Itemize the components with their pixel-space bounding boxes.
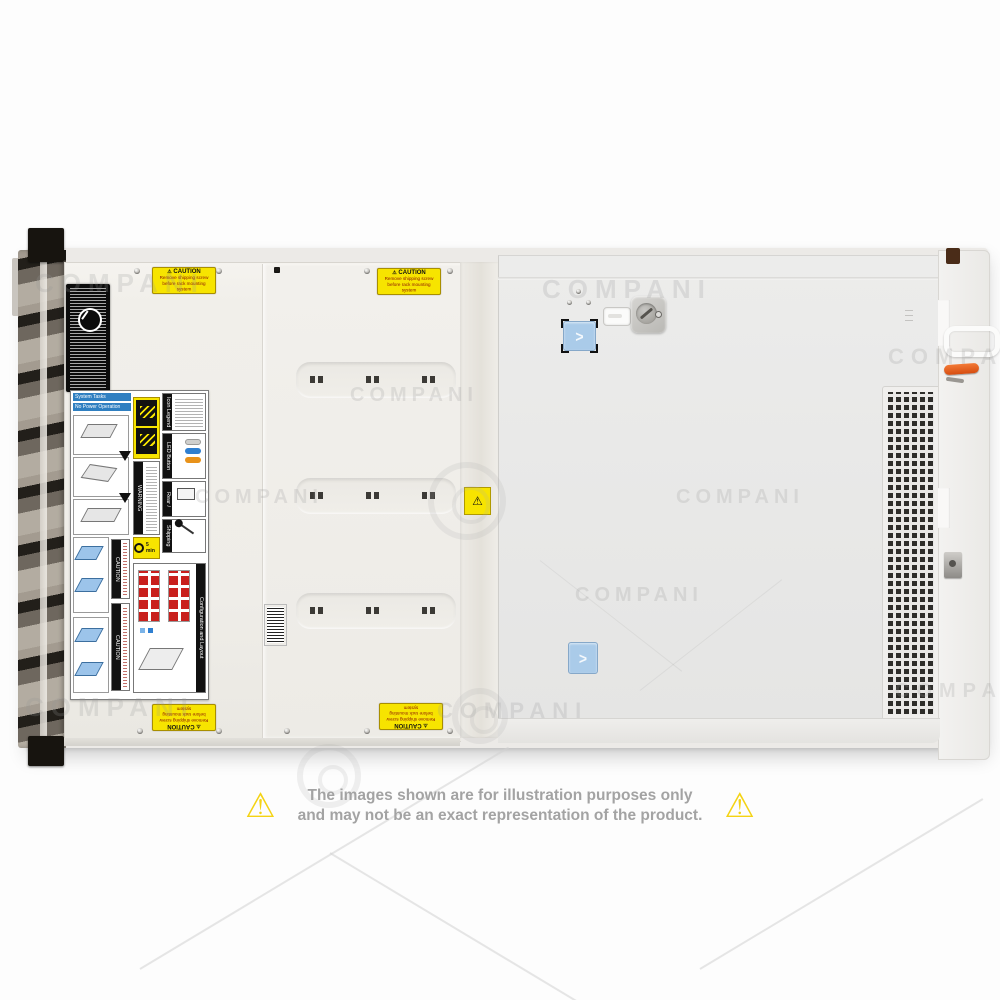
vent-slots bbox=[310, 492, 442, 499]
etched-text bbox=[905, 320, 913, 321]
corner-bracket bbox=[590, 319, 598, 328]
caution-label-bottom-right: ⚠ CAUTION Remove shipping screw before r… bbox=[379, 703, 443, 730]
watermark-logo bbox=[428, 462, 506, 540]
etched-text bbox=[905, 310, 913, 311]
hazard-pictogram bbox=[136, 400, 157, 426]
product-photo: COMPANI COMPANI COMPANI COMPANI COMPANI … bbox=[0, 0, 1000, 1000]
screw bbox=[364, 268, 370, 274]
shipping-tab bbox=[946, 248, 960, 264]
disclaimer-text: The images shown are for illustration pu… bbox=[298, 786, 703, 826]
warning-triangle-icon: ⚠ bbox=[392, 270, 396, 276]
warning-triangle-icon: ⚠ bbox=[724, 789, 754, 823]
drive-bay-grid bbox=[138, 570, 160, 622]
cover-ridge bbox=[498, 277, 945, 280]
arrow-icon bbox=[119, 451, 131, 461]
five-minute-timer-icon: 5 min bbox=[133, 537, 160, 559]
screw bbox=[364, 728, 370, 734]
caution-label-top-left: ⚠ CAUTION Remove shipping screw before r… bbox=[152, 267, 216, 294]
drive-bay-grid bbox=[168, 570, 190, 622]
corner-bracket bbox=[561, 319, 569, 328]
etched-text bbox=[905, 315, 913, 316]
corner-bracket bbox=[561, 344, 569, 353]
service-label: System Tasks No Power Operation WARNING … bbox=[70, 390, 209, 700]
chevron-right-icon: > bbox=[575, 328, 583, 344]
service-label-tab: No Power Operation bbox=[73, 403, 131, 411]
legend-square-blue bbox=[140, 628, 145, 633]
screw bbox=[576, 289, 581, 294]
watermark-line bbox=[329, 852, 673, 1000]
led-pill-gray bbox=[185, 439, 201, 445]
caution-strip: CAUTION bbox=[111, 603, 130, 691]
vent-slots bbox=[310, 607, 442, 614]
warning-triangle-icon: ⚠ bbox=[196, 723, 200, 729]
regulatory-text-lines bbox=[70, 288, 106, 388]
handle-recess bbox=[296, 362, 456, 398]
warning-panel: WARNING bbox=[133, 461, 160, 535]
barcode-label bbox=[264, 604, 287, 646]
screw bbox=[284, 728, 290, 734]
cover-latch-button-bottom: > bbox=[568, 642, 598, 674]
screw bbox=[586, 300, 591, 305]
keylock bbox=[631, 296, 666, 333]
screw bbox=[137, 728, 143, 734]
regulatory-emblem bbox=[78, 308, 102, 332]
rack-ear-bottom bbox=[28, 736, 64, 766]
step-diagram bbox=[73, 457, 129, 497]
screw bbox=[134, 268, 140, 274]
step-diagram bbox=[73, 415, 129, 455]
blue-step-diagram bbox=[73, 537, 109, 613]
handle-recess bbox=[296, 593, 456, 629]
rack-ear-top bbox=[28, 228, 64, 262]
disclaimer: ⚠ The images shown are for illustration … bbox=[0, 786, 1000, 826]
corner-bracket bbox=[590, 344, 598, 353]
hazard-pictogram bbox=[136, 428, 157, 454]
arrow-icon bbox=[119, 493, 131, 503]
service-tag-art bbox=[177, 488, 195, 500]
front-bottom-edge bbox=[64, 738, 460, 746]
chevron-right-icon: > bbox=[579, 650, 587, 666]
led-pill-blue bbox=[185, 448, 201, 454]
screw bbox=[274, 267, 280, 273]
lock-indicator bbox=[655, 311, 662, 318]
blue-step-diagram bbox=[73, 617, 109, 693]
screw bbox=[216, 728, 222, 734]
warning-triangle-icon: ⚠ bbox=[245, 789, 275, 823]
screw-art bbox=[180, 524, 194, 535]
edge-notch bbox=[938, 488, 950, 528]
watermark-logo bbox=[452, 688, 508, 744]
icon-legend-panel: Icon Legend bbox=[162, 393, 206, 431]
metal-bracket bbox=[944, 552, 962, 578]
chassis-isometric-art bbox=[138, 648, 184, 670]
led-behavior-panel: LED Button Behavior bbox=[162, 433, 206, 479]
pull-handle bbox=[944, 326, 1000, 357]
service-tag-panel: Rear / Express Service Tag bbox=[162, 481, 206, 517]
screw bbox=[567, 300, 572, 305]
lock-cylinder bbox=[636, 303, 657, 324]
bezel-rail bbox=[40, 252, 47, 746]
caution-strip: CAUTION bbox=[111, 539, 130, 599]
screw bbox=[447, 728, 453, 734]
shipping-screw-panel: Shipping Screw Removal bbox=[162, 519, 206, 553]
regulatory-label bbox=[66, 284, 110, 392]
clock-icon bbox=[134, 543, 144, 553]
warning-triangle-icon: ⚠ bbox=[423, 722, 427, 728]
configuration-layout-panel: Configuration and Layout bbox=[133, 563, 206, 693]
warning-sticker bbox=[133, 397, 160, 459]
legend-square-darkblue bbox=[148, 628, 153, 633]
key-slot bbox=[603, 307, 631, 326]
caution-label-bottom-left: ⚠ CAUTION Remove shipping screw before r… bbox=[152, 704, 216, 731]
screw bbox=[447, 268, 453, 274]
led-pill-orange bbox=[185, 457, 201, 463]
vent-grille bbox=[888, 392, 934, 714]
screw bbox=[216, 268, 222, 274]
warning-triangle-icon: ⚠ bbox=[167, 269, 171, 275]
vent-slots bbox=[310, 376, 442, 383]
step-diagram bbox=[73, 499, 129, 535]
caution-label-top-right: ⚠ CAUTION Remove shipping screw before r… bbox=[377, 268, 441, 295]
service-label-tab: System Tasks bbox=[73, 393, 131, 401]
bottom-edge-strip bbox=[498, 718, 940, 743]
cover-latch-button-top: > bbox=[563, 321, 596, 351]
